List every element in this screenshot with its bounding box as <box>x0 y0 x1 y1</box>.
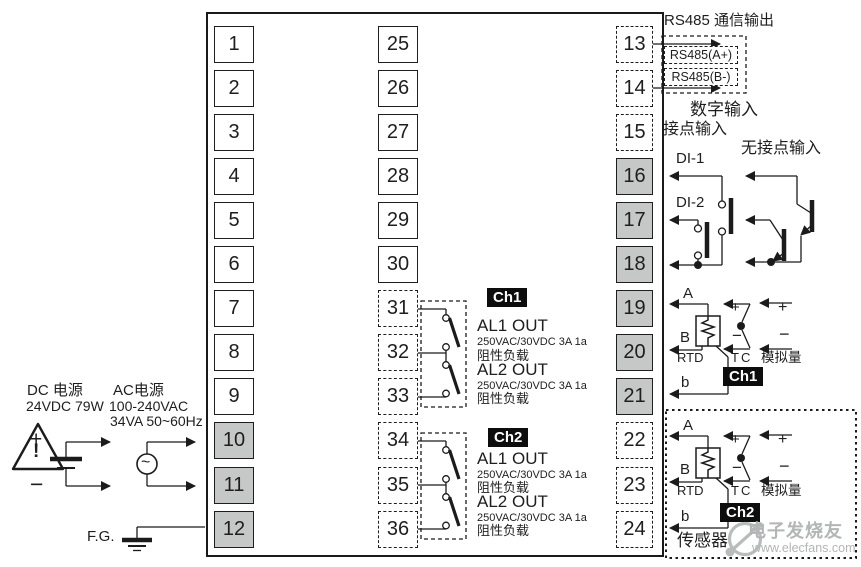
ch1-tc-minus: − <box>732 327 742 346</box>
terminal-23: 23 <box>616 467 653 504</box>
terminal-24: 24 <box>616 511 653 548</box>
fg-label: F.G. <box>87 529 115 546</box>
switch-contact-icon <box>719 201 726 208</box>
digital-input-wiring <box>670 176 812 269</box>
terminal-11: 11 <box>214 467 254 504</box>
ch1-tc-plus: + <box>731 300 740 317</box>
terminal-10: 10 <box>214 422 254 459</box>
contactless-input-label: 无接点输入 <box>741 140 821 158</box>
ch2-tc-minus: − <box>732 459 742 478</box>
terminal-18: 18 <box>616 246 653 283</box>
terminal-31: 31 <box>378 290 418 327</box>
terminal-15: 15 <box>616 114 653 151</box>
ch2-analog-plus: + <box>778 431 787 449</box>
di1-label: DI-1 <box>676 151 704 168</box>
terminal-16: 16 <box>616 158 653 195</box>
terminal-2: 2 <box>214 70 254 107</box>
di2-label: DI-2 <box>676 195 704 212</box>
rs485-section-title: RS485 通信输出 <box>664 13 774 30</box>
watermark-brand: 电子发烧友 <box>748 517 843 543</box>
ch1-al1-label: AL1 OUT <box>477 317 548 336</box>
alarm-ch2-badge: Ch2 <box>488 428 528 447</box>
wiring-diagram: DC 电源 24VDC 79W AC电源 100-240VAC 34VA 50~… <box>0 0 861 567</box>
ch2-analog-minus: − <box>779 457 790 477</box>
ac-wave-symbol: ~ <box>141 454 150 472</box>
ch2-terminal-b2-label: b <box>681 509 689 526</box>
terminal-6: 6 <box>214 246 254 283</box>
terminal-20: 20 <box>616 334 653 371</box>
terminal-33: 33 <box>378 378 418 415</box>
terminal-36: 36 <box>378 511 418 548</box>
ground-icon <box>122 540 152 551</box>
ch1-tc-label: TC <box>731 351 752 365</box>
ch1-analog-plus: + <box>778 299 787 317</box>
contact-input-label: 接点输入 <box>663 121 727 139</box>
ch1-terminal-b-label: B <box>680 330 690 347</box>
terminal-25: 25 <box>378 26 418 63</box>
terminal-8: 8 <box>214 334 254 371</box>
ch1-rtd-label: RTD <box>677 351 703 365</box>
ch2-rtd-label: RTD <box>677 484 703 498</box>
sensor-ch1-badge: Ch1 <box>723 367 763 386</box>
battery-icon <box>50 459 82 468</box>
terminal-4: 4 <box>214 158 254 195</box>
ch2-terminal-a-label: A <box>683 418 693 435</box>
terminal-29: 29 <box>378 202 418 239</box>
battery-plus-label: + <box>30 428 42 451</box>
ch2-analog-label: 模拟量 <box>761 484 802 499</box>
terminal-19: 19 <box>616 290 653 327</box>
rs485-b-label: RS485(B-) <box>664 68 738 86</box>
terminal-21: 21 <box>616 378 653 415</box>
terminal-34: 34 <box>378 422 418 459</box>
ch1-al1-rating: 250VAC/30VDC 3A 1a <box>477 336 587 348</box>
ac-power-spec-frequency: 34VA 50~60Hz <box>110 414 203 429</box>
terminal-32: 32 <box>378 334 418 371</box>
terminal-7: 7 <box>214 290 254 327</box>
terminal-30: 30 <box>378 246 418 283</box>
relay-contact-icon <box>443 447 450 454</box>
terminal-5: 5 <box>214 202 254 239</box>
ch2-terminal-b-label: B <box>680 462 690 479</box>
ch1-al2-load: 阻性负载 <box>477 392 529 406</box>
terminal-27: 27 <box>378 114 418 151</box>
ch1-terminal-b2-label: b <box>681 375 689 392</box>
relay-contact-icon <box>443 315 450 322</box>
ch1-analog-label: 模拟量 <box>761 351 802 366</box>
ch1-al2-label: AL2 OUT <box>477 361 548 380</box>
dc-power-spec: 24VDC 79W <box>26 399 104 414</box>
terminal-14: 14 <box>616 70 653 107</box>
terminal-12: 12 <box>214 511 254 548</box>
ch2-tc-plus: + <box>731 432 740 449</box>
terminal-13: 13 <box>616 26 653 63</box>
watermark-url: www.elecfans.com <box>752 541 856 555</box>
ch2-al2-load: 阻性负载 <box>477 524 529 538</box>
digital-input-title: 数字输入 <box>690 101 758 120</box>
ch2-tc-label: TC <box>731 484 752 498</box>
terminal-35: 35 <box>378 467 418 504</box>
ch2-al2-label: AL2 OUT <box>477 493 548 512</box>
terminal-3: 3 <box>214 114 254 151</box>
terminal-26: 26 <box>378 70 418 107</box>
terminal-28: 28 <box>378 158 418 195</box>
terminal-22: 22 <box>616 422 653 459</box>
relay-ch2-wiring <box>418 433 466 539</box>
alarm-ch1-badge: Ch1 <box>487 288 527 307</box>
terminal-1: 1 <box>214 26 254 63</box>
terminal-9: 9 <box>214 378 254 415</box>
battery-minus-label: − <box>30 472 43 497</box>
rs485-a-label: RS485(A+) <box>664 46 738 64</box>
terminal-17: 17 <box>616 202 653 239</box>
relay-contact-icon <box>443 494 450 501</box>
ch1-analog-minus: − <box>779 325 790 345</box>
switch-contact-icon <box>695 225 702 232</box>
ch2-al1-label: AL1 OUT <box>477 450 548 469</box>
relay-ch1-wiring <box>418 301 466 407</box>
relay-contact-icon <box>443 362 450 369</box>
ch1-terminal-a-label: A <box>683 286 693 303</box>
